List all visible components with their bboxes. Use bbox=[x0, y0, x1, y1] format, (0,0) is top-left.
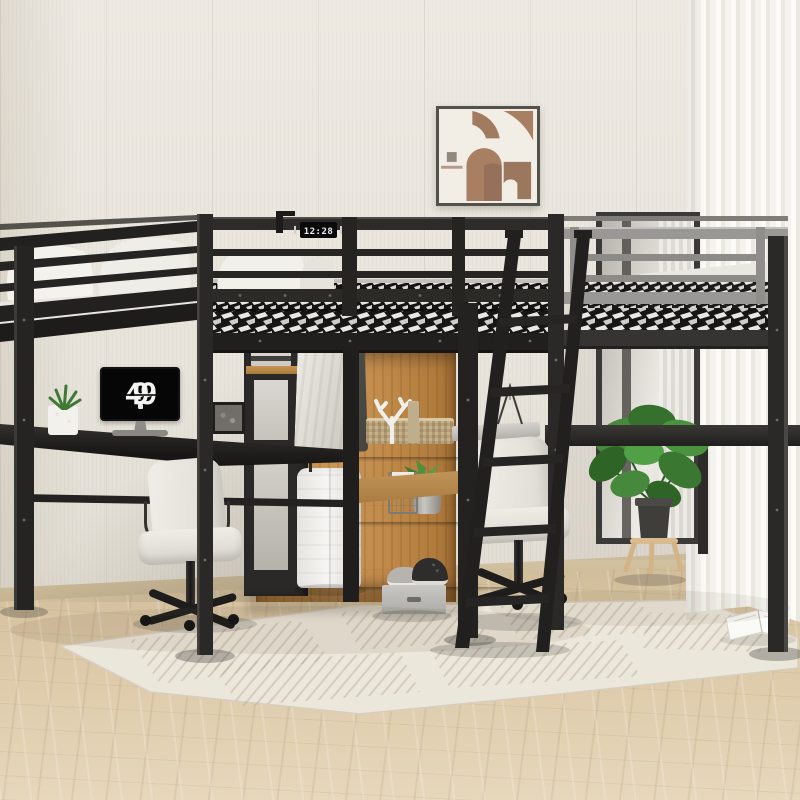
bed-deck-rail bbox=[562, 330, 788, 346]
post-bolts bbox=[23, 319, 779, 562]
floor-shadows bbox=[0, 574, 800, 663]
guardrail-slat bbox=[213, 271, 548, 278]
rail-mini-clock: 12:28 bbox=[294, 222, 342, 238]
guardrail-slat bbox=[574, 275, 760, 282]
right-bed bbox=[562, 216, 788, 349]
loft-bed-frame: 12:28 bbox=[0, 0, 800, 800]
guardrail-bottom bbox=[562, 292, 788, 304]
guardrail-slat bbox=[574, 254, 760, 261]
rail-clock-time: 12:28 bbox=[304, 227, 334, 237]
rail-post bbox=[452, 217, 465, 316]
guardrail-slat bbox=[213, 249, 548, 256]
loft-bed-product-photo: 9 49 bbox=[0, 0, 800, 800]
rail-post bbox=[342, 217, 357, 316]
